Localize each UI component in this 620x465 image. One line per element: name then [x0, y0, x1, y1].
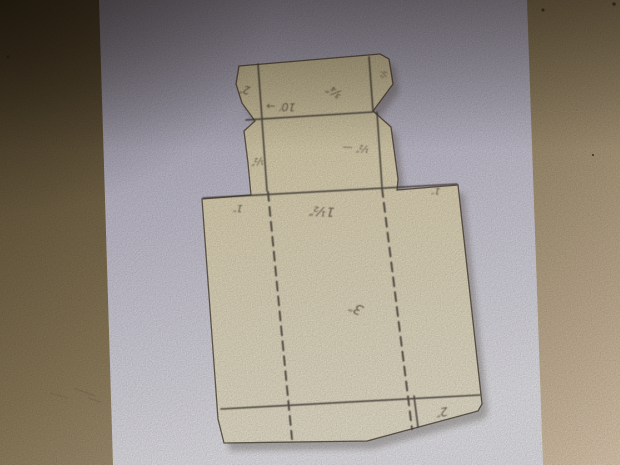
- photo-canvas: 2″10′ →¾″½½″½″ —1″1½″1″3″2″: [0, 0, 620, 465]
- photo-of-box-template: 2″10′ →¾″½½″½″ —1″1½″1″3″2″: [0, 0, 620, 465]
- photo-grain: [0, 0, 620, 465]
